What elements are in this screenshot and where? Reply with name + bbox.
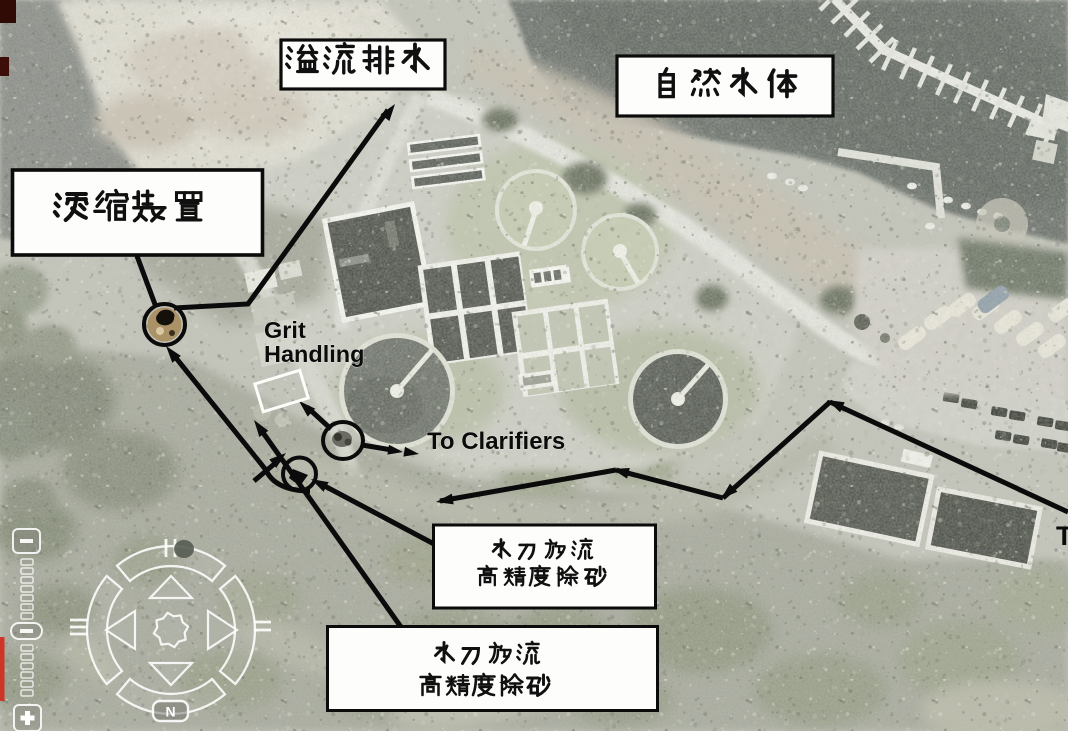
svg-text:Handling: Handling xyxy=(264,341,365,367)
svg-text:N: N xyxy=(165,704,175,720)
svg-text:To Clarifiers: To Clarifiers xyxy=(427,428,565,455)
svg-text:T: T xyxy=(1056,521,1068,551)
svg-text:Grit: Grit xyxy=(264,317,306,343)
